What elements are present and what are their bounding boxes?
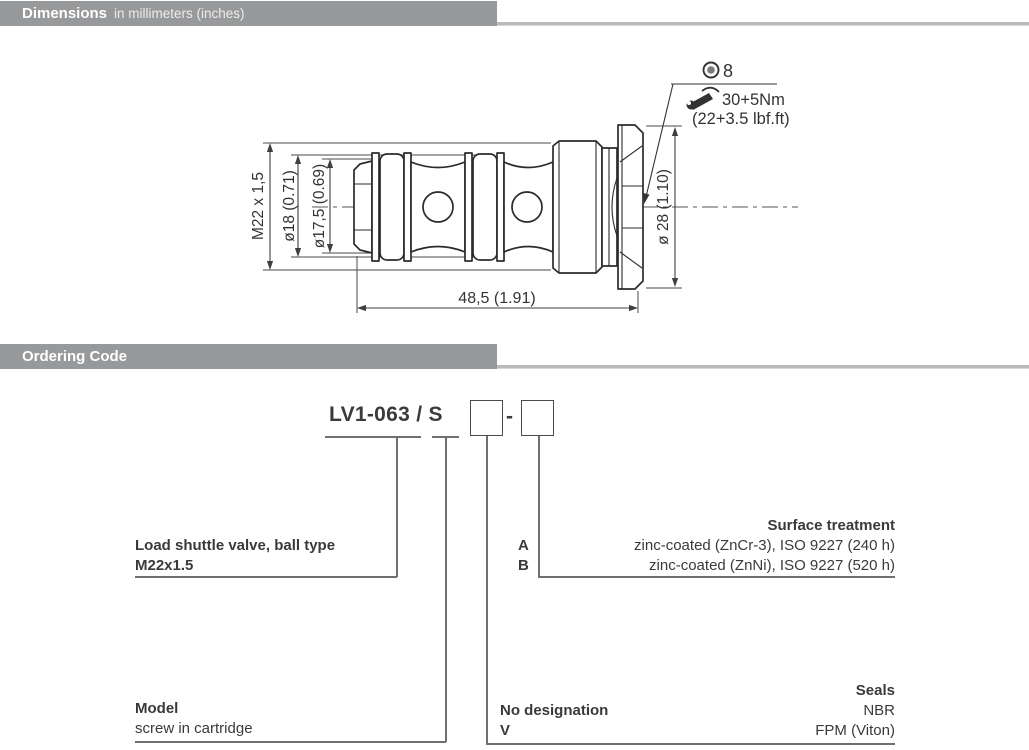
dia175-label: ø17,5 (0.69)	[311, 164, 328, 248]
torque-lbft-label: (22+3.5 lbf.ft)	[692, 110, 790, 128]
dia18-label: ø18 (0.71)	[281, 170, 298, 242]
seals-title: Seals	[500, 681, 895, 701]
leader-arrow	[643, 193, 649, 204]
surface-option-desc: zinc-coated (ZnCr-3), ISO 9227 (240 h)	[634, 536, 895, 556]
dimensions-section-header: Dimensions in millimeters (inches)	[0, 1, 497, 26]
seals-option-code: V	[500, 721, 510, 741]
connector-type-horizontal	[135, 576, 397, 578]
model-title: Model	[135, 699, 253, 719]
connector-type-vertical	[396, 438, 398, 577]
surface-option-row: A zinc-coated (ZnCr-3), ISO 9227 (240 h)	[518, 536, 895, 556]
seals-option-code: No designation	[500, 701, 608, 721]
seals-block: Seals No designation NBR V FPM (Viton)	[500, 681, 895, 741]
dia28-label: ø 28 (1.10)	[655, 169, 672, 245]
code-separator: -	[506, 405, 513, 429]
connector-model-vertical	[445, 438, 447, 742]
seals-option-desc: NBR	[863, 701, 895, 721]
groove-band	[465, 153, 472, 261]
seals-option-desc: FPM (Viton)	[815, 721, 895, 741]
cross-port-hole	[512, 192, 542, 222]
type-line1: Load shuttle valve, ball type	[135, 536, 335, 556]
hex-head-block	[553, 141, 602, 273]
surface-option-code: A	[518, 536, 529, 556]
seal-ring	[473, 154, 497, 260]
hex-size-label: 8	[723, 61, 733, 81]
ordering-header-rule	[497, 365, 1029, 369]
valve-cartridge-body	[354, 125, 643, 289]
ordering-title: Ordering Code	[22, 348, 127, 365]
torque-wrench-icon	[687, 88, 720, 110]
dimensions-title: Dimensions	[22, 5, 107, 22]
connector-seals-horizontal	[486, 743, 895, 745]
type-description: Load shuttle valve, ball type M22x1.5	[135, 536, 335, 576]
valve-dimension-drawing: 8 30+5Nm (22+3.5 lbf.ft) M22 x 1,5 ø18 (…	[240, 40, 810, 340]
dimensions-subtitle: in millimeters (inches)	[114, 6, 245, 21]
thread-label: M22 x 1,5	[250, 172, 267, 240]
base-code: LV1-063 / S	[329, 403, 443, 427]
surface-option-code: B	[518, 556, 529, 576]
dimensions-header-rule	[497, 22, 1029, 26]
connector-seals-vertical	[486, 436, 488, 744]
seal-ring	[380, 154, 404, 260]
seals-option-row: No designation NBR	[500, 701, 895, 721]
connector-surface-horizontal	[538, 576, 895, 578]
type-line2: M22x1.5	[135, 556, 335, 576]
cross-port-hole	[423, 192, 453, 222]
ordering-section-header: Ordering Code	[0, 344, 497, 369]
hex-socket-icon	[704, 63, 719, 78]
connector-model-horizontal	[135, 741, 446, 743]
model-value: screw in cartridge	[135, 719, 253, 739]
surface-title: Surface treatment	[518, 516, 895, 536]
groove-band	[372, 153, 379, 261]
surface-code-box	[521, 400, 554, 436]
model-block: Model screw in cartridge	[135, 699, 253, 739]
surface-option-desc: zinc-coated (ZnNi), ISO 9227 (520 h)	[649, 556, 895, 576]
datasheet-page: Dimensions in millimeters (inches)	[0, 0, 1029, 750]
length-label: 48,5 (1.91)	[458, 290, 535, 307]
surface-option-row: B zinc-coated (ZnNi), ISO 9227 (520 h)	[518, 556, 895, 576]
surface-treatment-block: Surface treatment A zinc-coated (ZnCr-3)…	[518, 516, 895, 576]
code-underline-model	[325, 436, 421, 438]
groove-band	[404, 153, 411, 261]
seal-code-box	[470, 400, 503, 436]
groove-band	[497, 153, 504, 261]
nose-hex	[354, 161, 372, 253]
seals-option-row: V FPM (Viton)	[500, 721, 895, 741]
torque-nm-label: 30+5Nm	[722, 91, 785, 109]
